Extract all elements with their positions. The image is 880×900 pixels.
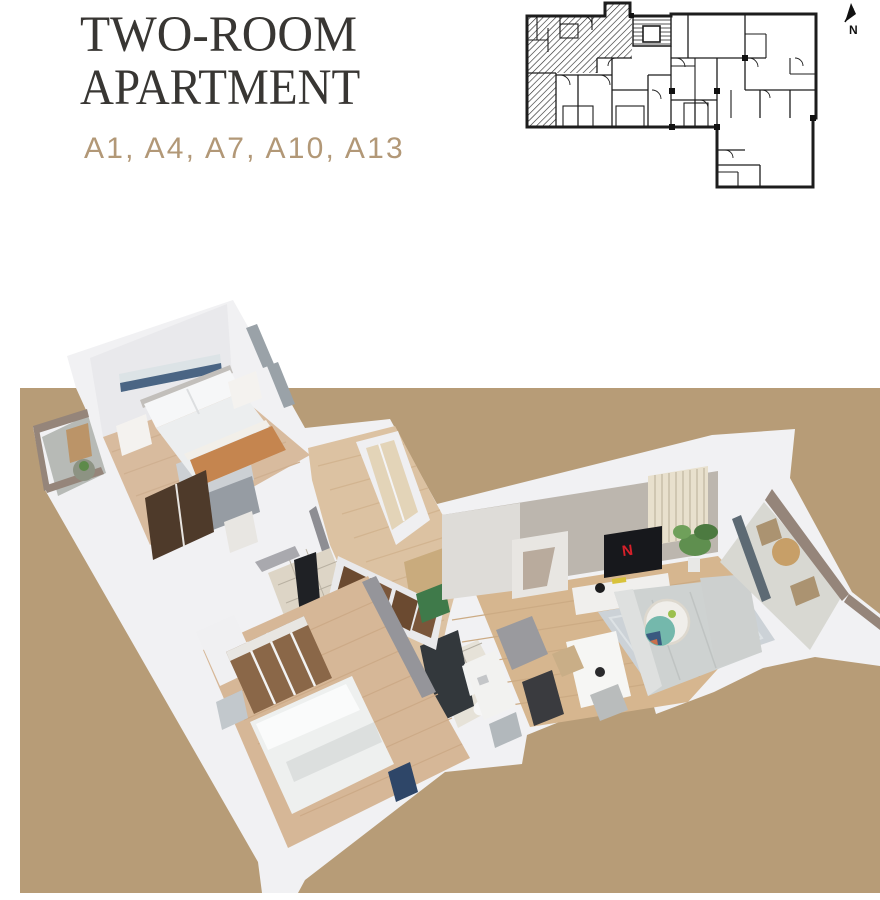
svg-text:N: N (849, 23, 858, 37)
